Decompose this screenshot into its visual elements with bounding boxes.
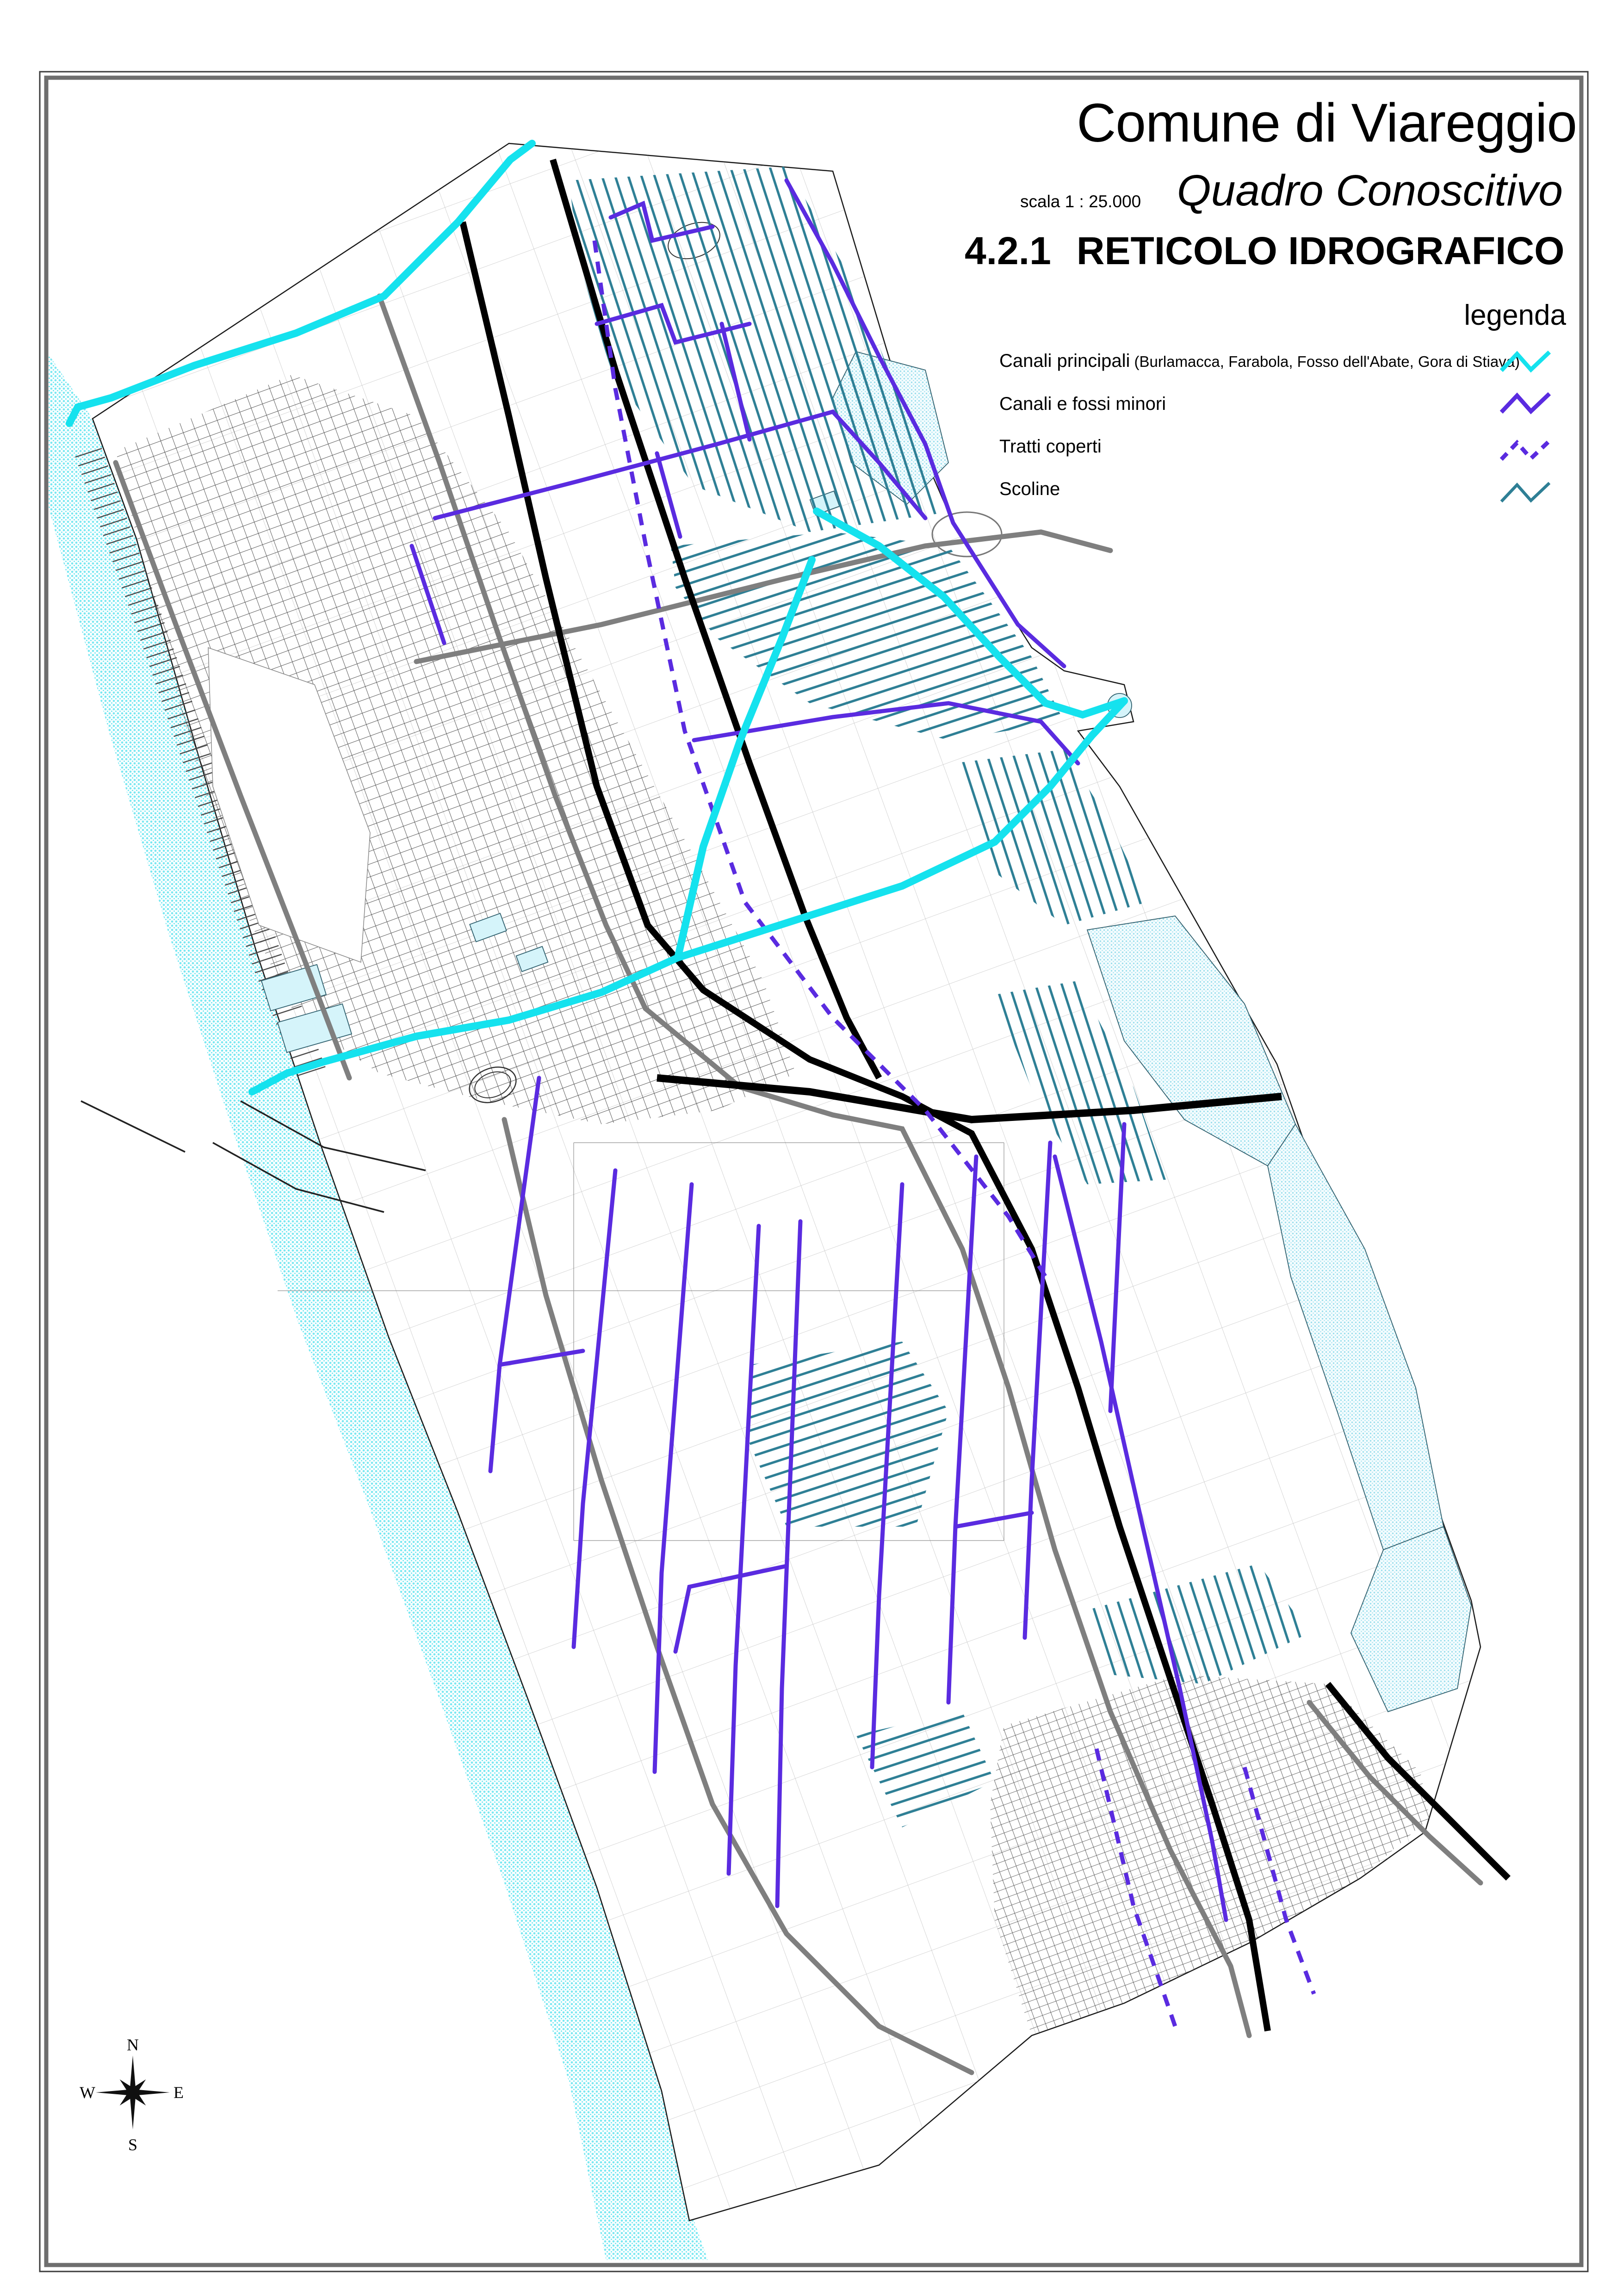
legend-swatch-canali-minori bbox=[1498, 391, 1553, 417]
legend-label: Scoline bbox=[999, 479, 1060, 499]
legend-swatch-canali-principali bbox=[1498, 349, 1553, 375]
sheet-heading: 4.2.1RETICOLO IDROGRAFICO bbox=[965, 230, 1564, 271]
legend-heading: legenda bbox=[1381, 300, 1566, 331]
compass-north: N bbox=[127, 2036, 139, 2054]
legend-label: Tratti coperti bbox=[999, 436, 1102, 457]
page-subtitle: Quadro Conoscitivo bbox=[1100, 167, 1563, 214]
page-title: Comune di Viareggio bbox=[925, 95, 1577, 151]
legend-note: (Burlamacca, Farabola, Fosso dell'Abate,… bbox=[1130, 353, 1520, 370]
legend-swatch-tratti-coperti bbox=[1498, 438, 1553, 464]
compass-west: W bbox=[80, 2083, 95, 2102]
sheet-title: RETICOLO IDROGRAFICO bbox=[1077, 229, 1565, 272]
legend-swatch-scoline bbox=[1498, 480, 1553, 506]
legend-item-canali-minori: Canali e fossi minori bbox=[999, 394, 1166, 415]
map-canvas: N E S W bbox=[0, 0, 1623, 2296]
map-sheet: N E S W Comune di Viareggio scala 1 : 25… bbox=[0, 0, 1623, 2296]
legend-label: Canali principali bbox=[999, 351, 1130, 371]
legend-item-tratti-coperti: Tratti coperti bbox=[999, 436, 1102, 457]
compass-rose: N E S W bbox=[80, 2036, 184, 2154]
sheet-number: 4.2.1 bbox=[965, 229, 1051, 272]
compass-south: S bbox=[128, 2135, 137, 2154]
legend-item-canali-principali: Canali principali (Burlamacca, Farabola,… bbox=[999, 351, 1520, 371]
compass-east: E bbox=[173, 2083, 184, 2102]
legend-label: Canali e fossi minori bbox=[999, 394, 1166, 414]
legend-item-scoline: Scoline bbox=[999, 479, 1060, 500]
